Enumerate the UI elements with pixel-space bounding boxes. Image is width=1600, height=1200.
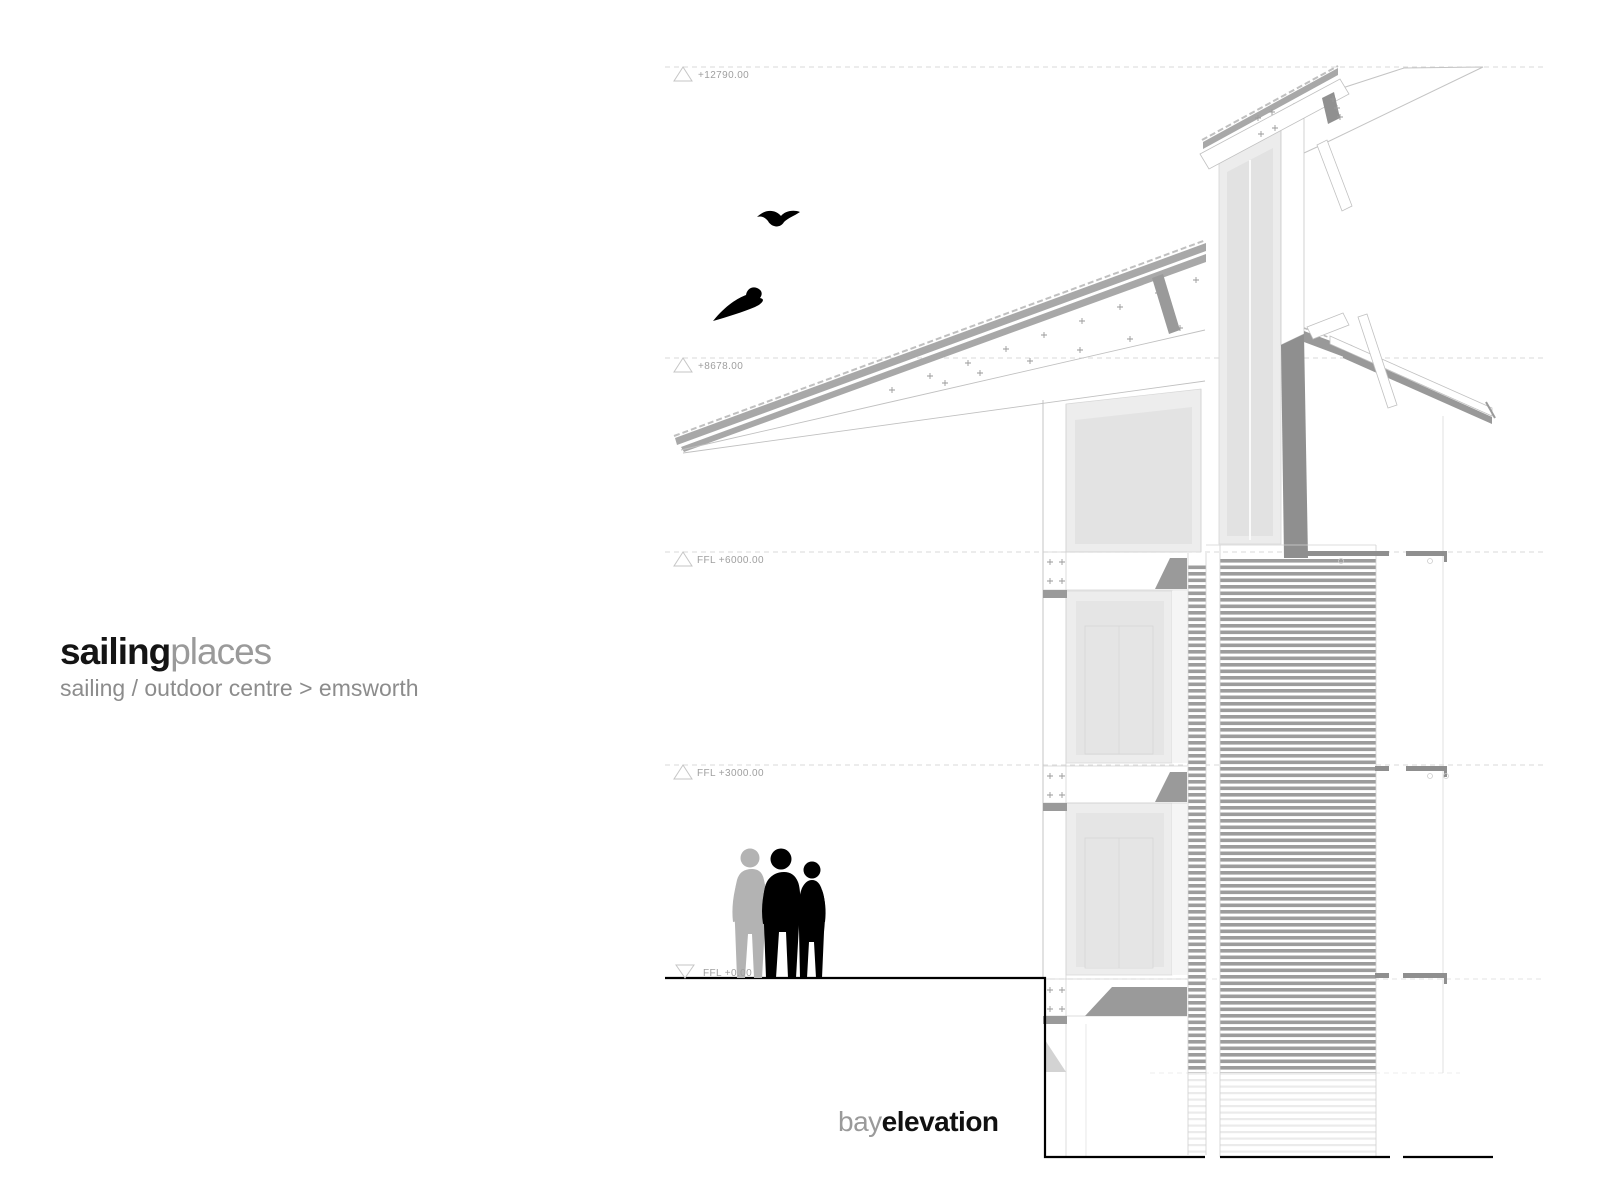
drawing-sheet: +12790.00 +8678.00 FFL +6000.00 FFL +300… <box>0 0 1600 1200</box>
title-block: sailingplaces sailing / outdoor centre >… <box>60 633 419 700</box>
level-label: FFL +6000.00 <box>697 555 764 566</box>
person-man <box>762 849 800 979</box>
level-marker-icon <box>674 67 692 81</box>
clerestory-tower <box>1200 66 1352 558</box>
project-title-bold: sailing <box>60 631 170 672</box>
drawing-title-bold: elevation <box>882 1106 999 1137</box>
level-markers <box>674 67 694 978</box>
level-labels: +12790.00 +8678.00 FFL +6000.00 FFL +300… <box>697 70 764 979</box>
louver-cladding <box>1188 545 1376 1157</box>
level-label: FFL +0.00 <box>703 968 752 979</box>
roof-bolts <box>889 277 1199 393</box>
level-label: +12790.00 <box>698 70 749 81</box>
roof-strut <box>1152 274 1180 334</box>
project-subtitle: sailing / outdoor centre > emsworth <box>60 676 419 700</box>
project-title: sailingplaces <box>60 633 419 672</box>
bay-elevation-drawing: +12790.00 +8678.00 FFL +6000.00 FFL +300… <box>0 0 1600 1200</box>
project-title-light: places <box>170 631 271 672</box>
drawing-title: bayelevation <box>838 1106 999 1138</box>
drawing-title-light: bay <box>838 1106 882 1137</box>
level-marker-icon <box>674 552 692 566</box>
bird-icon <box>757 211 800 227</box>
tower-shadow-band <box>1281 334 1308 558</box>
bird-icon <box>713 287 763 321</box>
level-label: +8678.00 <box>698 361 743 372</box>
level-marker-icon <box>674 765 692 779</box>
people-silhouettes <box>732 849 825 979</box>
tower-column <box>1281 118 1304 345</box>
person-gray <box>732 849 766 979</box>
level-label: FFL +3000.00 <box>697 768 764 779</box>
level-marker-icon <box>676 965 694 978</box>
level-marker-icon <box>674 358 692 372</box>
birds <box>713 211 800 321</box>
person-woman <box>798 862 825 979</box>
